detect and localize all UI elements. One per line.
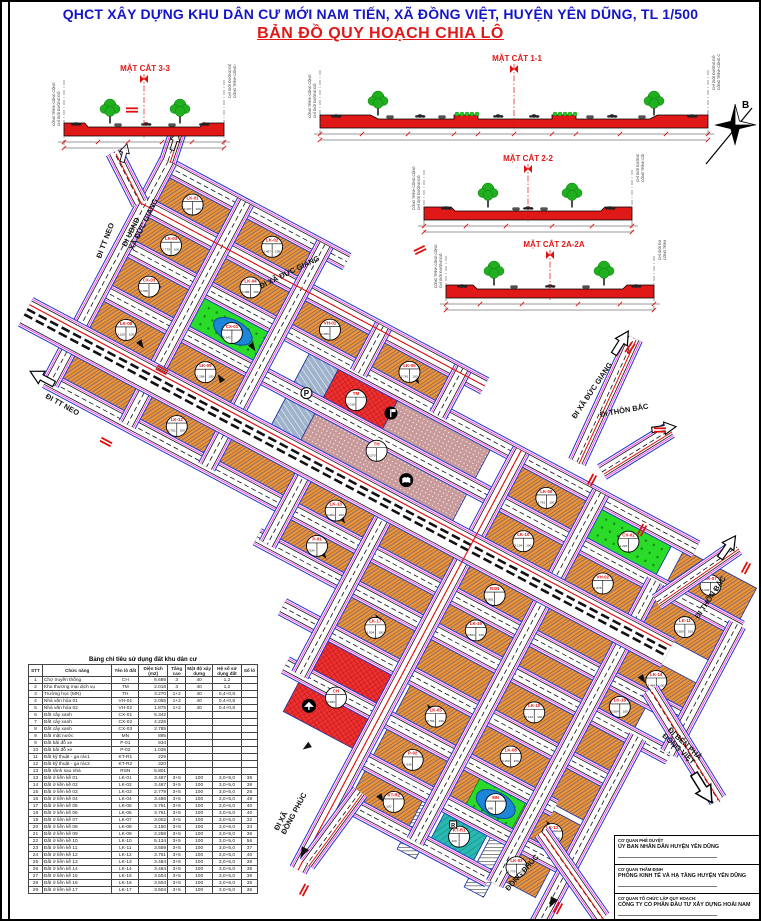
table-cell: 23 (29, 845, 43, 852)
svg-text:LK-12: LK-12 (171, 417, 184, 422)
svg-text:CX-02: CX-02 (622, 532, 635, 537)
table-cell: TH (112, 691, 139, 698)
svg-text:LK-01: LK-01 (187, 195, 200, 200)
table-cell: 36 (241, 880, 257, 887)
table-cell: 1+2 (168, 705, 186, 712)
table-cell: 0,4+0,8 (213, 705, 242, 712)
svg-text:2.055: 2.055 (321, 332, 329, 336)
svg-text:100: 100 (479, 633, 484, 637)
table-cell (213, 726, 242, 733)
table-cell: MN (112, 733, 139, 740)
table-row: 11Đất kỹ thuật - ga rác1KT-R1229 (29, 754, 258, 761)
table-row: 25Đất ở liền kề 13LK-133.4843+51003,0+5,… (29, 859, 258, 866)
table-cell (213, 761, 242, 768)
title-block-appraisal: CƠ QUAN THẨM ĐỊNH PHÒNG KINH TẾ VÀ HẠ TẦ… (615, 865, 761, 894)
signature-line (618, 913, 717, 916)
table-cell (168, 754, 186, 761)
table-cell: 3+5 (168, 817, 186, 824)
svg-text:100: 100 (537, 715, 542, 719)
table-row: 15Đất ở liền kề 03LK-032.7793+51003,0+5,… (29, 789, 258, 796)
agency-name: PHÒNG KINH TẾ VÀ HẠ TẦNG HUYỆN YÊN DŨNG (618, 873, 759, 879)
table-cell: CH (112, 677, 139, 684)
table-cell: Đất bãi đỗ xe (42, 740, 112, 747)
table-cell: 3,0+5,0 (213, 838, 242, 845)
table-cell: 100 (186, 845, 213, 852)
map-subtitle: BẢN ĐỒ QUY HOẠCH CHIA LÔ (2, 25, 759, 43)
table-cell: 895 (139, 733, 168, 740)
table-cell (241, 733, 257, 740)
svg-text:3.761: 3.761 (427, 719, 435, 723)
table-cell: 100 (186, 810, 213, 817)
table-cell: Đất ở liền kề 04 (42, 796, 112, 803)
table-cell: 8 (29, 726, 43, 733)
svg-text:100: 100 (412, 374, 417, 378)
table-col-header: Mật độ xây dựng (186, 665, 213, 677)
sheet-header: QHCT XÂY DỰNG KHU DÂN CƯ MỚI NAM TIẾN, X… (2, 6, 759, 43)
table-row: 4Nhà văn hóa 01VH-012.0551+2400,4+0,8 (29, 698, 258, 705)
table-cell: 100 (186, 838, 213, 845)
table-cell: Nhà văn hóa 01 (42, 698, 112, 705)
table-cell: 320 (139, 761, 168, 768)
svg-text:3.484: 3.484 (327, 513, 335, 517)
svg-text:LK-02: LK-02 (266, 238, 279, 243)
table-cell (186, 761, 213, 768)
table-cell: 37 (241, 845, 257, 852)
lot-symbol: VH-01 2.055 (319, 319, 340, 340)
table-cell: 40 (186, 684, 213, 691)
table-cell (168, 719, 186, 726)
table-cell: LK-09 (112, 831, 139, 838)
svg-text:LK-03: LK-03 (165, 236, 178, 241)
svg-text:2.785: 2.785 (140, 289, 148, 293)
svg-text:P-01: P-01 (312, 537, 322, 542)
svg-text:100: 100 (688, 630, 693, 634)
table-cell: 10 (29, 747, 43, 754)
table-row: 6Đất cây xanhCX-015.342 (29, 712, 258, 719)
svg-text:3.467: 3.467 (184, 207, 192, 211)
table-cell: 28 (29, 880, 43, 887)
table-cell: 3.761 (139, 803, 168, 810)
table-cell: Đất ở liền kề 11 (42, 845, 112, 852)
table-cell: Nhà văn hóa 02 (42, 705, 112, 712)
svg-text:CX-01: CX-01 (226, 324, 239, 329)
svg-text:3.486: 3.486 (242, 290, 250, 294)
table-cell: 100 (186, 873, 213, 880)
table-cell: 13 (29, 775, 43, 782)
table-cell: Đất ở liền kề 02 (42, 782, 112, 789)
table-cell: Khu thương mại dịch vụ (42, 684, 112, 691)
table-cell: 3,0+5,0 (213, 880, 242, 887)
lot-symbol: LK-10 5.134 100 (524, 702, 545, 723)
table-cell: 3.761 (139, 810, 168, 817)
svg-text:3.761: 3.761 (537, 500, 545, 504)
table-cell (241, 726, 257, 733)
cross-section-3-3: MẶT CẮT 3-3 CHỈ GIỚI ĐƯỜNG ĐỎCÔNG TRÌNH … (28, 64, 262, 166)
table-cell: 3,0+5,0 (213, 789, 242, 796)
lot-symbol: LK-09 2.268 100 (195, 362, 216, 383)
table-cell: 26 (29, 866, 43, 873)
table-cell: LK-15 (112, 873, 139, 880)
table-cell: LK-17 (112, 887, 139, 894)
table-cell: 20 (29, 824, 43, 831)
lot-symbol: LK-08 3.150 100 (500, 746, 521, 767)
table-cell: 3+5 (168, 838, 186, 845)
table-row: 24Đất ở liền kề 12LK-123.7613+51003,0+5,… (29, 852, 258, 859)
table-cell: 1,2 (213, 677, 242, 684)
table-cell: 229 (139, 754, 168, 761)
table-cell (186, 726, 213, 733)
table-row: 3Trường học (MN)TH3.2701+2400,4+0,8 (29, 691, 258, 698)
table-cell: Đất ở liền kề 14 (42, 866, 112, 873)
table-cell: 3.504 (139, 887, 168, 894)
svg-text:CÔNG TRÌNH CÔNG CỘNG: CÔNG TRÌNH CÔNG CỘNG (640, 154, 645, 182)
svg-text:100: 100 (129, 332, 134, 336)
svg-text:320: 320 (386, 804, 391, 808)
svg-text:4.226: 4.226 (620, 544, 628, 548)
table-cell: LK-04 (112, 796, 139, 803)
svg-text:VH-02: VH-02 (597, 574, 610, 579)
svg-text:TH: TH (374, 442, 380, 447)
svg-text:CÔNG TRÌNH CÔNG CỘNG: CÔNG TRÌNH CÔNG CỘNG (232, 64, 237, 98)
svg-text:100: 100 (253, 290, 258, 294)
table-cell: VH-01 (112, 698, 139, 705)
svg-text:CHỈ GIỚI ĐƯỜNG ĐỎ: CHỈ GIỚI ĐƯỜNG ĐỎ (227, 64, 232, 98)
table-cell: 6.689 (139, 677, 168, 684)
table-cell: 29 (29, 887, 43, 894)
table-row: 12Đất kỹ thuật - ga rác2KT-R2320 (29, 761, 258, 768)
table-cell: 40 (241, 803, 257, 810)
table-cell: Chợ truyền thống (42, 677, 112, 684)
table-cell (241, 768, 257, 775)
table-cell: 3 (168, 677, 186, 684)
table-cell: 3.484 (139, 859, 168, 866)
table-cell: Đất ở liền kề 07 (42, 817, 112, 824)
table-cell: LK-10 (112, 838, 139, 845)
table-cell: 1+2 (168, 698, 186, 705)
table-cell: Đất rãnh sau nhà (42, 768, 112, 775)
svg-text:KT-R2: KT-R2 (387, 793, 400, 798)
table-row: 8Đất cây xanhCX-032.785 (29, 726, 258, 733)
svg-text:LK-11: LK-11 (679, 618, 692, 623)
svg-text:100: 100 (439, 719, 444, 723)
table-cell: 3 (29, 691, 43, 698)
table-cell: 38 (241, 775, 257, 782)
table-cell: 1 (29, 677, 43, 684)
table-cell: 12 (29, 761, 43, 768)
svg-text:3.150: 3.150 (117, 332, 125, 336)
lot-symbol: LK-10 5.134 100 (513, 531, 534, 552)
svg-text:CÔNG TRÌNH CÔNG CỘNG: CÔNG TRÌNH CÔNG CỘNG (307, 74, 312, 118)
lot-symbol: LK-06 3.761 100 (536, 487, 557, 508)
table-cell: 32 (241, 817, 257, 824)
table-cell: 3.002 (139, 817, 168, 824)
table-cell: 3,0+5,0 (213, 824, 242, 831)
lot-symbol: LK-17 3.504 100 (365, 617, 386, 638)
svg-text:LK-08: LK-08 (505, 747, 518, 752)
table-cell: 3.150 (139, 824, 168, 831)
lot-symbol: CX-03 2.785 (138, 276, 159, 297)
svg-text:CÔNG TRÌNH CÔNG CỘNG: CÔNG TRÌNH CÔNG CỘNG (433, 244, 438, 288)
table-cell (186, 768, 213, 775)
svg-text:CHỈ GIỚI ĐƯỜNG ĐỎ: CHỈ GIỚI ĐƯỜNG ĐỎ (438, 253, 443, 288)
signature-line (618, 884, 717, 887)
table-cell: 14 (29, 782, 43, 789)
table-cell: 7 (29, 719, 43, 726)
table-cell: 100 (186, 852, 213, 859)
table-cell: 3.504 (139, 880, 168, 887)
table-cell: 2.055 (139, 698, 168, 705)
table-cell: 40 (186, 705, 213, 712)
lot-symbol: LK-03 2.779 100 (161, 235, 182, 256)
svg-text:3.504: 3.504 (366, 630, 374, 634)
table-row: 21Đất ở liền kề 09LK-092.2683+51003,0+5,… (29, 831, 258, 838)
table-cell: LK-16 (112, 880, 139, 887)
table-cell: 3+5 (168, 845, 186, 852)
table-cell (241, 740, 257, 747)
table-cell: Đất kỹ thuật - ga rác1 (42, 754, 112, 761)
table-cell: 3+5 (168, 782, 186, 789)
lot-symbol: LK-04 3.486 100 (240, 277, 261, 298)
table-cell: 100 (186, 803, 213, 810)
svg-text:3.150: 3.150 (502, 759, 510, 763)
title-block-consultant: CƠ QUAN TỔ CHỨC LẬP QUY HOẠCH: CÔNG TY C… (615, 894, 761, 921)
north-arrow-icon: B (698, 94, 760, 170)
table-cell: 3 (168, 684, 186, 691)
svg-text:2.018: 2.018 (347, 403, 355, 407)
table-cell: 38 (241, 866, 257, 873)
table-col-header: Số lô (241, 665, 257, 677)
table-cell: CX-01 (112, 712, 139, 719)
table-cell (186, 740, 213, 747)
table-cell: 100 (186, 789, 213, 796)
table-cell: 3.559 (139, 845, 168, 852)
table-cell (186, 719, 213, 726)
table-cell: 100 (186, 824, 213, 831)
lot-symbol: TH 3.270 (366, 440, 387, 461)
table-cell: 40 (186, 698, 213, 705)
svg-text:2.268: 2.268 (197, 375, 205, 379)
table-cell: 21 (29, 831, 43, 838)
svg-text:5.134: 5.134 (525, 715, 533, 719)
table-cell: 26 (241, 789, 257, 796)
table-cell: 3+5 (168, 887, 186, 894)
table-cell: 1.035 (139, 747, 168, 754)
svg-text:LK-05: LK-05 (430, 707, 443, 712)
table-cell: 2.785 (139, 726, 168, 733)
table-cell: 3.486 (139, 796, 168, 803)
table-row: 13Đất ở liền kề 01LK-013.4673+51003,0+5,… (29, 775, 258, 782)
table-row: 23Đất ở liền kề 11LK-113.5593+51003,0+5,… (29, 845, 258, 852)
svg-text:CÔNG TRÌNH CÔNG CỘNG: CÔNG TRÌNH CÔNG CỘNG (51, 82, 56, 126)
svg-text:LK-14: LK-14 (650, 672, 663, 677)
lot-symbol: TM 2.018 (345, 390, 366, 411)
table-cell (213, 733, 242, 740)
svg-text:3.559: 3.559 (676, 630, 684, 634)
cross-section-1-1: MẶT CẮT 1-1 CHỈ GIỚI ĐƯỜNG ĐỎCÔNG TRÌNH … (302, 54, 732, 168)
table-cell: 100 (186, 880, 213, 887)
svg-text:CHỈ GIỚI ĐƯỜNG ĐỎ: CHỈ GIỚI ĐƯỜNG ĐỎ (56, 91, 61, 126)
table-cell: 13 (29, 768, 43, 775)
lot-symbol: LK-13 3.484 100 (325, 500, 346, 521)
table-cell: CX-02 (112, 719, 139, 726)
cross-section-2a-2a: MẶT CẮT 2A-2A CHỈ GIỚI ĐƯỜNG ĐỎCÔNG TRÌN… (422, 240, 686, 320)
table-cell: 3,0+5,0 (213, 852, 242, 859)
svg-text:P-02: P-02 (408, 751, 418, 756)
table-cell: 100 (186, 859, 213, 866)
table-cell: 3+5 (168, 796, 186, 803)
agency-role-label: CƠ QUAN THẨM ĐỊNH (618, 867, 759, 872)
svg-text:934: 934 (309, 548, 314, 552)
lot-symbol: CX-02 4.226 (618, 531, 639, 552)
table-row: 20Đất ở liền kề 08LK-083.1503+51003,0+5,… (29, 824, 258, 831)
table-row: 19Đất ở liền kề 07LK-073.0023+51003,0+5,… (29, 817, 258, 824)
svg-text:100: 100 (659, 683, 664, 687)
plan-sheet: QHCT XÂY DỰNG KHU DÂN CƯ MỚI NAM TIẾN, X… (0, 0, 761, 921)
table-cell: 3+5 (168, 824, 186, 831)
table-cell: 2.268 (139, 831, 168, 838)
table-cell: 48 (241, 796, 257, 803)
svg-text:LK-17: LK-17 (369, 619, 382, 624)
table-cell: 3,0+5,0 (213, 817, 242, 824)
table-cell: LK-07 (112, 817, 139, 824)
table-cell: LK-14 (112, 866, 139, 873)
land-use-table-grid: STTChức năngTên lô đấtDiện tích (m2)Tầng… (28, 664, 258, 894)
table-col-header: Tầng cao (168, 665, 186, 677)
table-col-header: Tên lô đất (112, 665, 139, 677)
table-cell: LK-02 (112, 782, 139, 789)
table-cell: 17 (29, 803, 43, 810)
table-cell: 11 (29, 754, 43, 761)
table-cell: 3+5 (168, 880, 186, 887)
table-cell: 36 (241, 873, 257, 880)
table-cell: 4.226 (139, 719, 168, 726)
table-cell: 1.875 (139, 705, 168, 712)
svg-text:CHỈ GIỚI ĐƯỜNG ĐỎ: CHỈ GIỚI ĐƯỜNG ĐỎ (635, 154, 640, 182)
svg-text:3.761: 3.761 (168, 429, 176, 433)
svg-text:5.134: 5.134 (514, 544, 522, 548)
table-cell: CX-03 (112, 726, 139, 733)
table-cell: LK-06 (112, 810, 139, 817)
table-cell: Đất ở liền kề 10 (42, 838, 112, 845)
table-cell (186, 754, 213, 761)
lot-symbol: RSN 5.801 (484, 585, 505, 606)
table-cell: 24 (29, 852, 43, 859)
table-row: 17Đất ở liền kề 05LK-053.7613+51003,0+5,… (29, 803, 258, 810)
table-cell: 2.018 (139, 684, 168, 691)
table-cell (213, 747, 242, 754)
table-cell: 3,0+5,0 (213, 873, 242, 880)
table-cell: 5.342 (139, 712, 168, 719)
svg-text:LK-13: LK-13 (330, 501, 343, 506)
svg-text:LK-04: LK-04 (244, 278, 257, 283)
table-cell: 100 (186, 887, 213, 894)
table-row: 16Đất ở liền kề 04LK-043.4863+51003,0+5,… (29, 796, 258, 803)
signature-line (618, 855, 717, 858)
cross-section-drawing: CHỈ GIỚI ĐƯỜNG ĐỎCÔNG TRÌNH CÔNG CỘNGCHỈ… (394, 154, 662, 246)
table-cell: LK-13 (112, 859, 139, 866)
svg-text:3.504: 3.504 (611, 709, 619, 713)
table-cell: LK-01 (112, 775, 139, 782)
lot-symbol: LK-15 3.504 100 (465, 620, 486, 641)
table-row: 13Đất rãnh sau nhàRSN5.801 (29, 768, 258, 775)
table-cell: 3.467 (139, 782, 168, 789)
svg-text:100: 100 (196, 207, 201, 211)
lot-symbol: LK-05 3.761 100 (399, 361, 420, 382)
agency-role-label: CƠ QUAN TỔ CHỨC LẬP QUY HOẠCH: (618, 896, 759, 901)
agency-role-label: CƠ QUAN PHÊ DUYỆT (618, 838, 759, 843)
table-cell: 3.504 (139, 873, 168, 880)
table-cell: 3+5 (168, 803, 186, 810)
table-cell: 3,0+5,0 (213, 782, 242, 789)
cross-section-2-2: MẶT CẮT 2-2 CHỈ GIỚI ĐƯỜNG ĐỎCÔNG TRÌNH … (394, 154, 662, 246)
svg-text:100: 100 (526, 544, 531, 548)
table-cell: 3.270 (139, 691, 168, 698)
svg-text:100: 100 (514, 759, 519, 763)
table-cell (241, 761, 257, 768)
svg-text:CX-03: CX-03 (143, 277, 156, 282)
lot-symbol: P-01 934 (306, 535, 327, 556)
table-row: 14Đất ở liền kề 02LK-023.4673+51003,0+5,… (29, 782, 258, 789)
table-cell: 3+5 (168, 852, 186, 859)
table-cell: Đất ở liền kề 16 (42, 880, 112, 887)
svg-text:100: 100 (174, 248, 179, 252)
svg-text:LK-03: LK-03 (510, 858, 523, 863)
table-cell (241, 747, 257, 754)
svg-text:3.484: 3.484 (647, 683, 655, 687)
table-cell: 56 (241, 838, 257, 845)
table-cell: 3,0+5,0 (213, 845, 242, 852)
lot-symbol: LK-12 3.761 100 (166, 416, 187, 437)
table-cell: 19 (29, 817, 43, 824)
cross-section-drawing: CHỈ GIỚI ĐƯỜNG ĐỎCÔNG TRÌNH CÔNG CỘNGCHỈ… (302, 54, 732, 168)
table-cell: RSN (112, 768, 139, 775)
svg-text:100: 100 (623, 709, 628, 713)
svg-text:LK-10: LK-10 (517, 532, 530, 537)
lot-symbol: KT-R2 320 (383, 791, 404, 812)
table-cell: 1,2 (213, 684, 242, 691)
table-cell: 38 (241, 859, 257, 866)
table-row: 7Đất cây xanhCX-024.226 (29, 719, 258, 726)
table-cell (168, 712, 186, 719)
agency-name: CÔNG TY CỔ PHẦN ĐẦU TƯ XÂY DỰNG HOÀI NAM (618, 902, 759, 908)
svg-text:100: 100 (180, 429, 185, 433)
cross-section-drawing: CHỈ GIỚI ĐƯỜNG ĐỎCÔNG TRÌNH CÔNG CỘNGCHỈ… (28, 64, 262, 166)
table-cell: 18 (29, 810, 43, 817)
table-cell: Đất cây xanh (42, 719, 112, 726)
table-cell: 3,0+5,0 (213, 803, 242, 810)
table-cell: Đất ở liền kề 13 (42, 859, 112, 866)
svg-text:CÔNG TRÌNH CÔNG CỘNG: CÔNG TRÌNH CÔNG CỘNG (716, 54, 721, 90)
svg-text:LK-05: LK-05 (403, 363, 416, 368)
svg-text:3.761: 3.761 (401, 374, 409, 378)
table-cell: Đất ở liền kề 17 (42, 887, 112, 894)
table-cell: 27 (29, 873, 43, 880)
table-col-header: STT (29, 665, 43, 677)
table-cell (241, 705, 257, 712)
table-cell (213, 712, 242, 719)
svg-text:CHỈ GIỚI ĐƯỜNG ĐỎ: CHỈ GIỚI ĐƯỜNG ĐỎ (416, 175, 421, 210)
table-cell (241, 698, 257, 705)
table-row: 1Chợ truyền thốngCH6.6893401,2 (29, 677, 258, 684)
land-use-table: Bảng chỉ tiêu sử dụng đất khu dân cư STT… (28, 656, 258, 894)
table-cell (168, 761, 186, 768)
svg-text:CHỈ GIỚI ĐƯỜNG ĐỎ: CHỈ GIỚI ĐƯỜNG ĐỎ (657, 240, 662, 260)
table-cell: 1+2 (168, 691, 186, 698)
table-row: 29Đất ở liền kề 17LK-173.5043+51003,0+5,… (29, 887, 258, 894)
table-cell: 3+5 (168, 831, 186, 838)
svg-text:CHỈ GIỚI ĐƯỜNG ĐỎ: CHỈ GIỚI ĐƯỜNG ĐỎ (312, 83, 317, 118)
table-col-header: Diện tích (m2) (139, 665, 168, 677)
